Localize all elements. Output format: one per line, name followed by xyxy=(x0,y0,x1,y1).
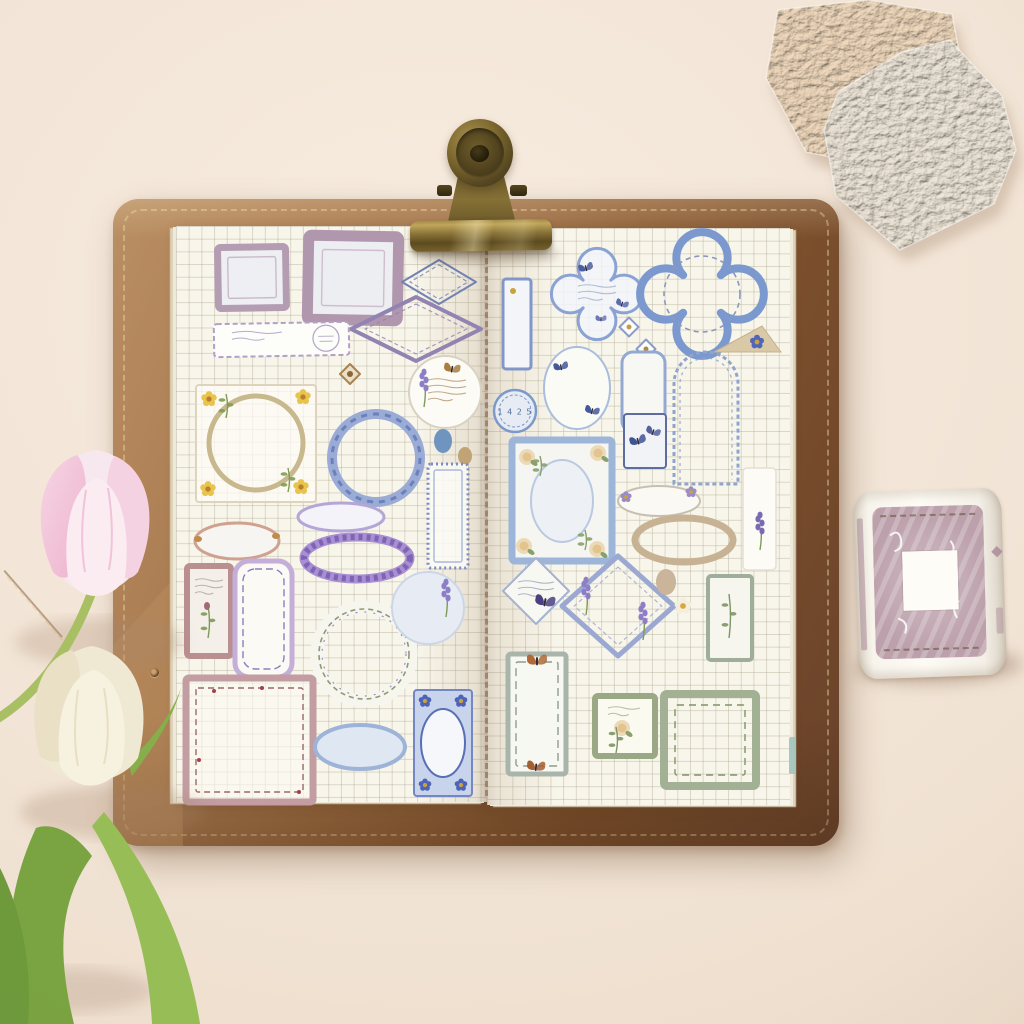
page-left xyxy=(176,226,487,802)
flatlay-scene: 1 4 2 5 xyxy=(0,0,1024,1024)
quartz-stone-peach xyxy=(766,0,963,168)
cover-eyelet xyxy=(150,668,159,677)
binder-clip-bar xyxy=(410,219,552,252)
binder-clip-pin-left xyxy=(437,185,452,196)
quartz-stone-white xyxy=(824,40,1016,250)
leaf-left xyxy=(9,826,92,1024)
pocket-stitching xyxy=(6,576,63,641)
tape-white-center xyxy=(902,550,959,610)
leaf-edge xyxy=(0,868,29,1024)
washi-tape-roll xyxy=(853,487,1007,679)
tape-mauve-square-design xyxy=(872,505,987,660)
tape-design-edge-left xyxy=(857,518,868,650)
tape-design-edge-diamond xyxy=(991,546,1002,557)
binder-clip-head xyxy=(445,117,516,189)
binder-clip-pin-right xyxy=(510,185,527,196)
page-right xyxy=(487,228,790,805)
page-edge-tab-sticker xyxy=(789,737,796,774)
pink-tulip-stem xyxy=(0,592,92,722)
cover-pocket xyxy=(113,560,183,846)
tape-design-edge-right xyxy=(996,607,1004,633)
tape-body xyxy=(853,487,1007,679)
binding-stitch xyxy=(485,240,488,796)
